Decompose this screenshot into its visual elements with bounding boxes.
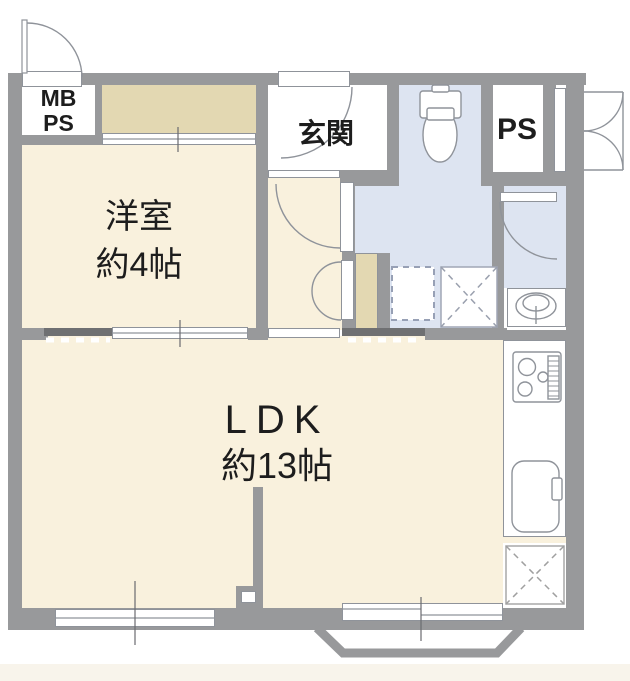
- wall-left: [8, 73, 22, 630]
- wall-boundary-c: [425, 328, 507, 340]
- hall-closet-bifold-panel: [341, 260, 354, 320]
- closet-sliding-door: [102, 133, 256, 145]
- closet: [102, 85, 256, 133]
- ldk-label: LDK 約13帖: [127, 397, 427, 489]
- window-bay: [342, 603, 503, 621]
- exterior-ground-strip: [0, 664, 630, 681]
- wall-under-mb: [22, 135, 102, 145]
- wall-boundary-d: [504, 330, 566, 340]
- ldk-pillar-core: [241, 591, 256, 603]
- washbasin-counter: [507, 288, 566, 327]
- wall-powder-room-left: [492, 186, 504, 333]
- ldk-name: LDK: [127, 397, 427, 443]
- kitchen-counter: [503, 340, 566, 537]
- wall-right: [566, 73, 584, 630]
- western-room-size: 約4帖: [39, 241, 239, 289]
- toilet-nook-floor: [399, 85, 481, 186]
- western-room-name: 洋室: [39, 193, 239, 241]
- sliding-rail-washroom: [342, 328, 425, 336]
- hall-ldk-opening: [268, 328, 340, 338]
- wall-cabinet-right: [378, 253, 390, 333]
- western-room-label: 洋室 約4帖: [39, 193, 239, 289]
- service-door-panel: [554, 88, 566, 172]
- wall-boundary-b: [248, 328, 268, 340]
- ldk-size: 約13帖: [127, 443, 427, 489]
- sliding-rail-west: [44, 328, 112, 336]
- meter-box-label: MB PS: [22, 86, 95, 136]
- front-door-leaf: [278, 71, 350, 87]
- bay-window: [317, 628, 521, 653]
- entrance-step: [268, 170, 340, 178]
- hall-floor: [268, 178, 342, 330]
- meter-box-label-line1: MB: [22, 86, 95, 111]
- room-sliding-door: [112, 327, 248, 339]
- powder-room-door-leaf: [500, 192, 557, 202]
- hall-cabinet: [355, 253, 378, 333]
- meter-box-door-swing: [22, 20, 82, 77]
- pipe-space-label: PS: [487, 113, 547, 147]
- washroom-door-leaf: [340, 182, 354, 252]
- wall-ps-bottom: [481, 172, 566, 186]
- service-double-door-swing: [584, 92, 623, 170]
- window-left: [55, 609, 215, 627]
- appliance-area: [503, 543, 566, 608]
- meter-box-label-line2: PS: [22, 111, 95, 136]
- entrance-label: 玄関: [266, 112, 386, 152]
- floor-plan: MB PS 玄関 PS 洋室 約4帖 LDK 約13帖: [0, 0, 630, 681]
